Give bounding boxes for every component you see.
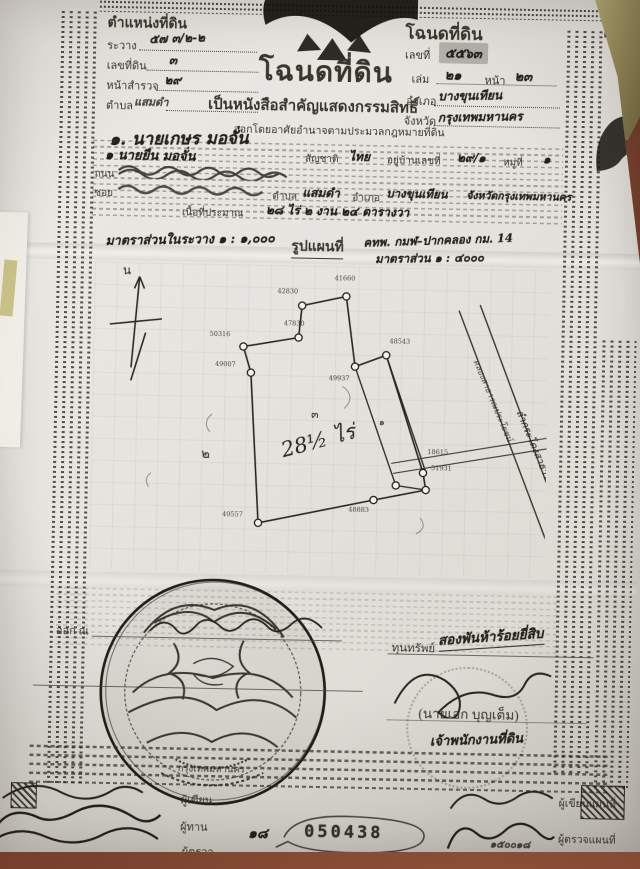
officer-title: เจ้าพนักงานที่ดิน — [430, 728, 524, 752]
parcel-1: ๑ — [379, 418, 385, 428]
no-label: เลขที่ — [405, 46, 431, 64]
svg-text:42830: 42830 — [277, 287, 298, 295]
deed-paper: ตำแหน่งที่ดิน ระวาง ๕๗ ๓/๒-๒ เลขที่ดิน ๓… — [0, 0, 640, 852]
address-value: ๒๙/๑ — [457, 149, 486, 169]
survey-value: ๒๙ — [164, 71, 181, 90]
main-title: โฉนดที่ดิน — [258, 49, 393, 96]
north-arrow-icon — [109, 276, 163, 381]
moo-value: ๑ — [543, 150, 551, 169]
map-checker-signature — [440, 814, 559, 858]
svg-text:47830: 47830 — [284, 319, 305, 327]
serial-circle-handwriting — [274, 807, 435, 858]
nationality-value: ไทย — [349, 148, 370, 167]
svg-text:49937: 49937 — [329, 374, 350, 382]
map-figure-label: รูปแผนที่ — [291, 235, 344, 259]
area-note-handwritten: 28½ ไร่ — [277, 419, 360, 463]
svg-text:51931: 51931 — [431, 464, 452, 472]
footer-right-note: ๑๕๐๐๑๘ — [490, 837, 530, 853]
land-no-label: เลขที่ดิน — [107, 56, 147, 75]
amphoe2-value: บางขุนเทียน — [386, 185, 448, 204]
parcel-2: ๒ — [201, 447, 210, 462]
canal-label-2: คลองสาธารณประโยชน์ — [470, 358, 515, 445]
svg-text:48883: 48883 — [348, 506, 369, 514]
map-checker-label: ผู้ตรวจแผนที่ — [558, 831, 616, 849]
parcel-boundary — [240, 295, 429, 527]
issued-handwriting — [146, 609, 337, 643]
amphoe-value: บางขุนเทียน — [438, 86, 502, 106]
tambon2-value: แสมดำ — [302, 184, 340, 204]
parcel-3: ๓ — [311, 408, 319, 421]
svg-text:18615: 18615 — [427, 448, 448, 456]
left-signatures — [0, 780, 183, 850]
map-scale: มาตราส่วน ๑ : ๔๐๐๐ — [375, 249, 484, 269]
svg-text:41660: 41660 — [335, 274, 356, 282]
survey-map: น 50316 47830 4283 — [89, 262, 550, 579]
road-label: ถนน — [95, 167, 115, 182]
soi-label: ซอย — [94, 186, 113, 201]
issued-label: ออก ณ — [56, 621, 89, 640]
main-subtitle: เป็นหนังสือสำคัญแสดงกรรมสิทธิ์ — [208, 92, 419, 120]
survey-map-drawing: น 50316 47830 4283 — [89, 262, 550, 579]
tambon-value: แสมดำ — [134, 92, 169, 111]
nationality-label: สัญชาติ — [305, 152, 339, 168]
map-writer-label: ผู้เขียนแผนที่ — [559, 795, 617, 813]
serial-prefix: ๑๘ — [248, 823, 268, 845]
address-label: อยู่บ้านเลขที่ — [387, 153, 441, 169]
deed-content: ตำแหน่งที่ดิน ระวาง ๕๗ ๓/๒-๒ เลขที่ดิน ๓… — [0, 0, 640, 858]
map-writer-signature — [444, 782, 560, 818]
area-label: เนื้อที่ประมาณ — [182, 205, 244, 221]
land-no-value: ๓ — [169, 51, 178, 70]
svg-text:50316: 50316 — [210, 330, 231, 338]
area-value: ๒๘ ไร่ ๒ งาน ๒๔ ตารางวา — [266, 201, 410, 223]
tambon-label: ตำบล — [106, 96, 133, 115]
border-right-outer-band — [594, 340, 637, 791]
moo-label: หมู่ที่ — [503, 155, 523, 170]
svg-text:48543: 48543 — [389, 337, 410, 345]
no-value: ๕๕๖๓ — [439, 42, 488, 64]
proof-label: ผู้ทาน — [180, 817, 208, 836]
province2-value: จังหวัดกรุงเทพมหานคร — [466, 187, 571, 206]
vertex-numbers: 50316 47830 42830 41660 49937 48543 4900… — [206, 272, 455, 523]
authority-line: ออกโดยอาศัยอำนาจตามประมวลกฎหมายที่ดิน — [233, 120, 444, 141]
north-label: น — [123, 263, 131, 277]
rawang-value: ๕๗ ๓/๒-๒ — [149, 28, 205, 49]
rawang-label: ระวาง — [107, 36, 137, 55]
scribble-strikeout — [116, 182, 266, 199]
scale-in-sheet: มาตราส่วนในระวาง ๑ : ๑,๐๐๐ — [105, 228, 275, 251]
writer-label: ผู้เขียน — [181, 790, 213, 809]
svg-text:49557: 49557 — [222, 510, 243, 518]
svg-text:49007: 49007 — [215, 360, 236, 368]
volume-label: เล่ม — [411, 70, 429, 88]
